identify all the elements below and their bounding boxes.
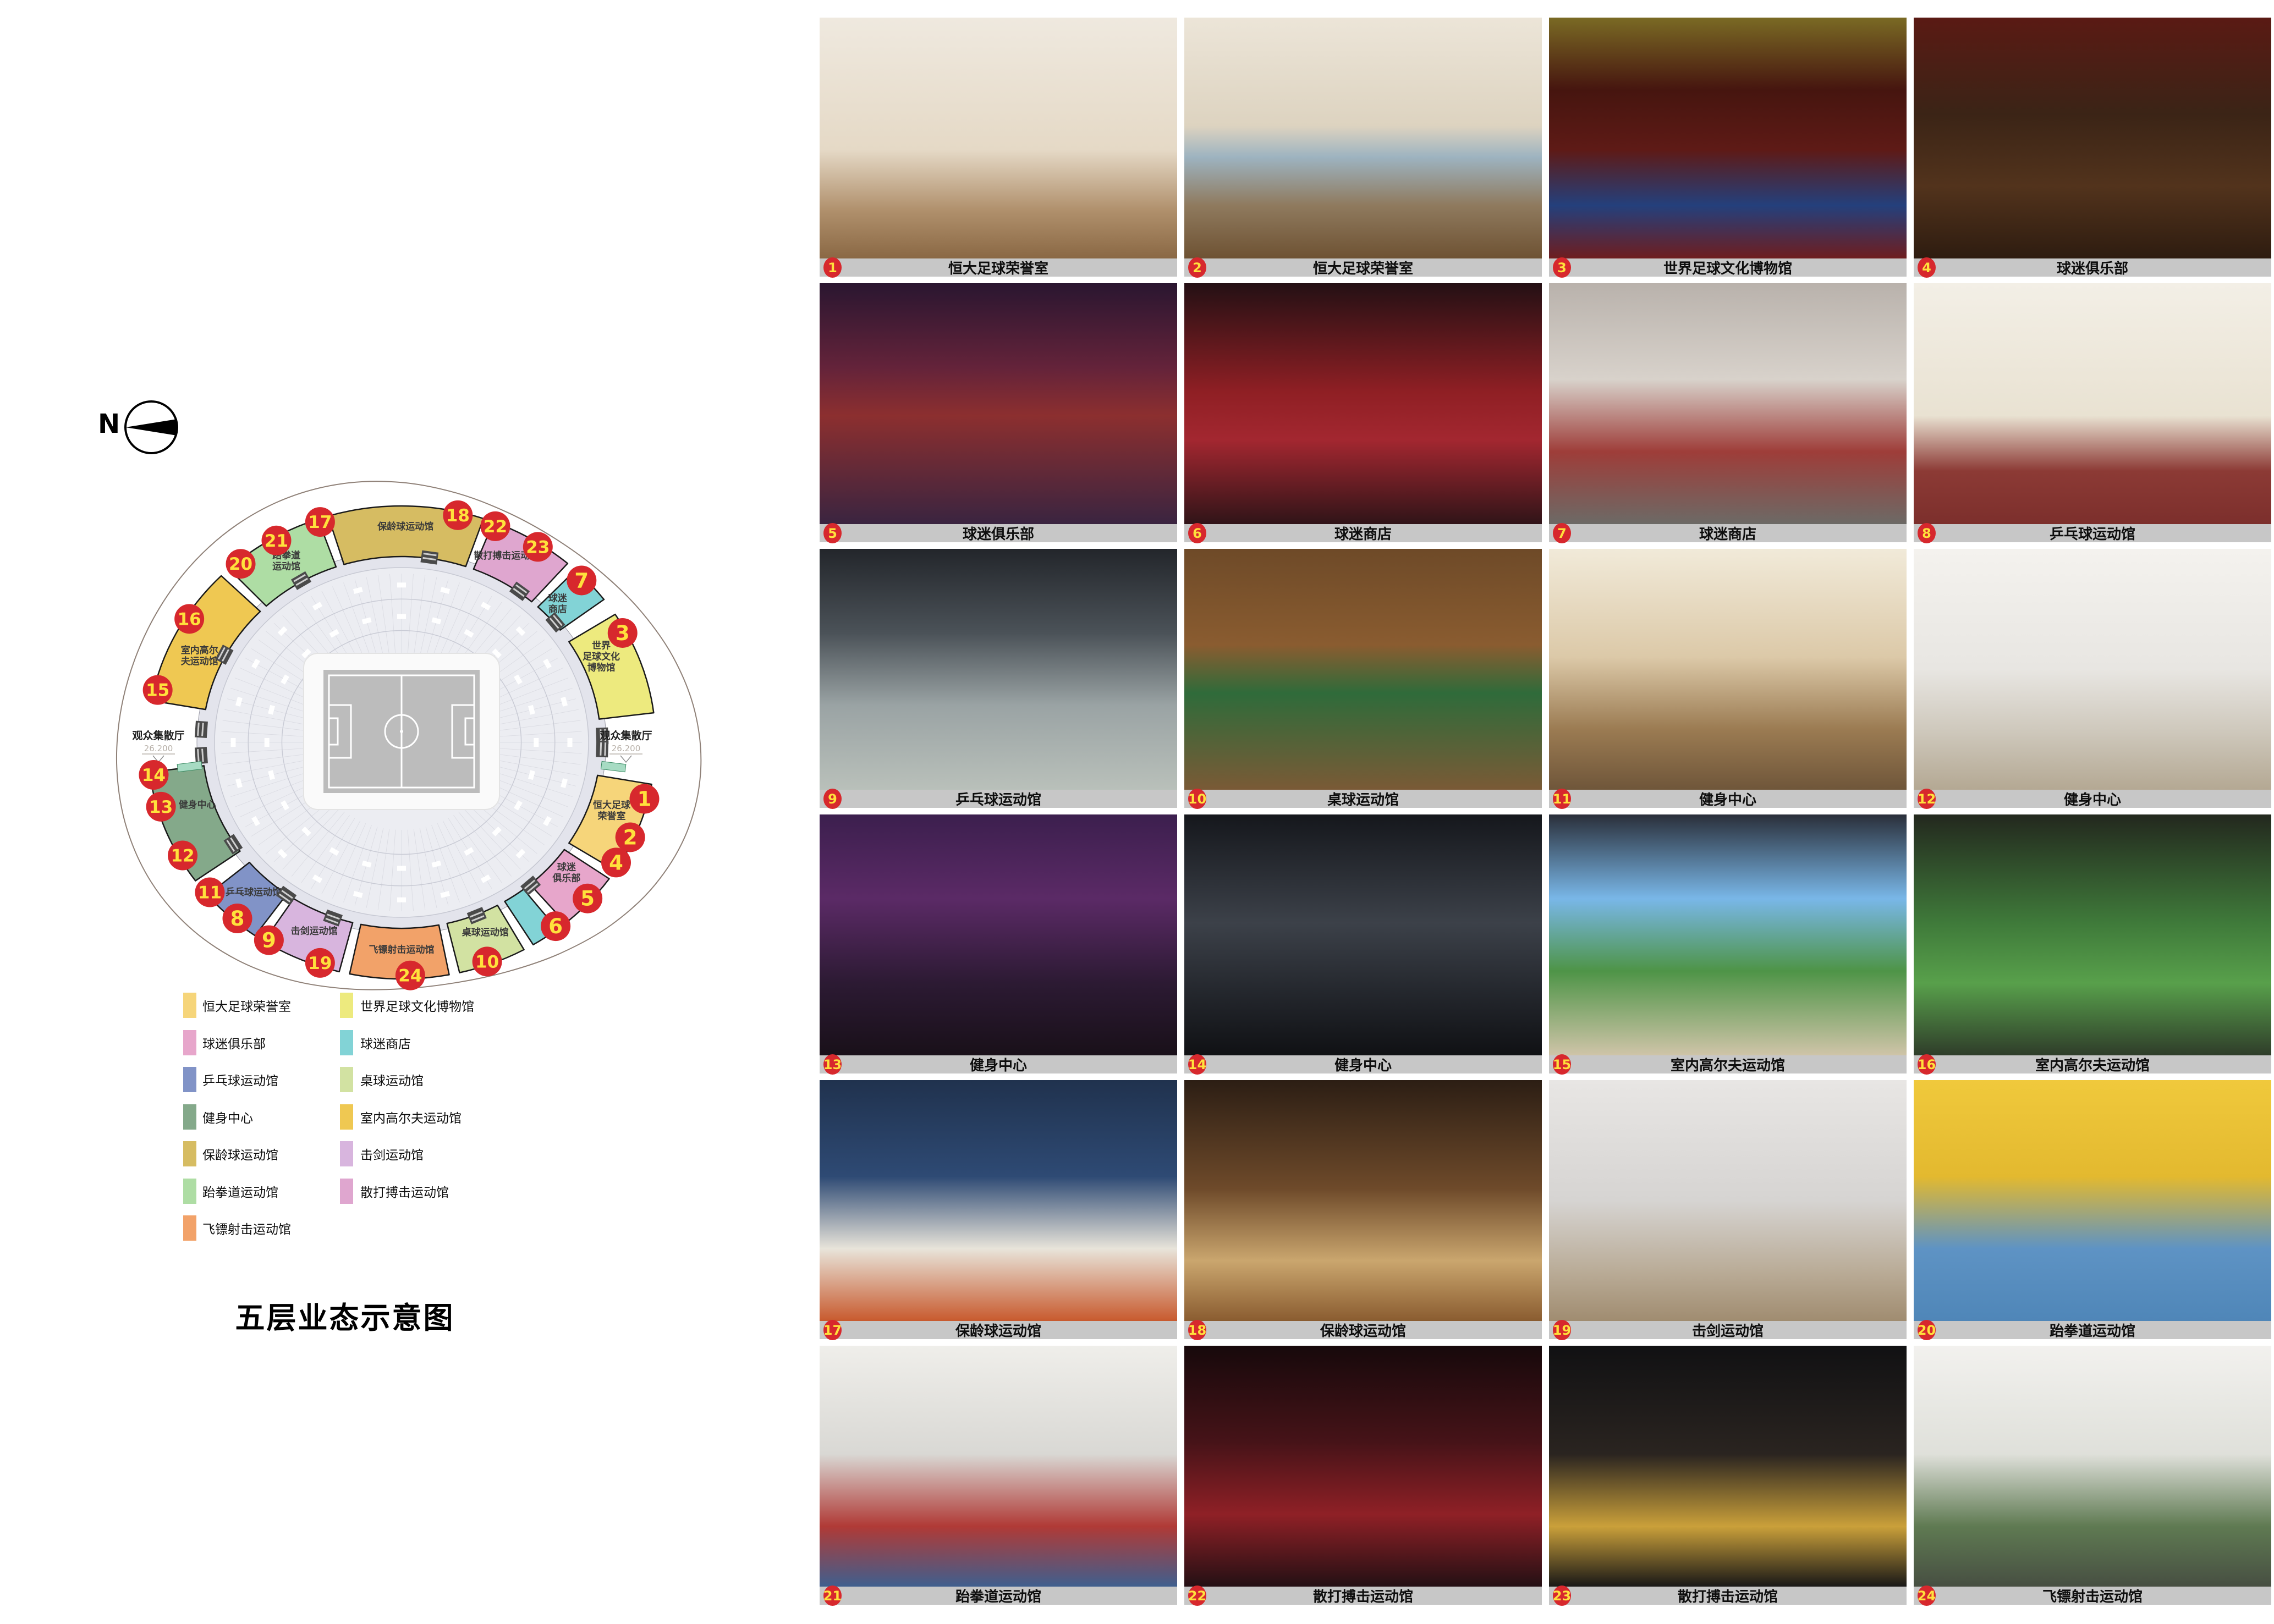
legend-label: 跆拳道运动馆 xyxy=(202,1182,278,1201)
photo-number-badge: 9 xyxy=(823,789,842,809)
photo-caption-bar: 9乒乓球运动馆 xyxy=(820,790,1177,808)
photo-number-badge: 22 xyxy=(1188,1586,1206,1606)
photo-caption-label: 飞镖射击运动馆 xyxy=(1914,1586,2271,1606)
legend-swatch xyxy=(340,993,353,1018)
photo-caption-bar: 24飞镖射击运动馆 xyxy=(1914,1587,2271,1605)
photo-caption-label: 击剑运动馆 xyxy=(1549,1320,1907,1340)
photo-placeholder xyxy=(820,18,1177,258)
legend-item: 健身中心 xyxy=(183,1104,253,1130)
photo-caption-bar: 2恒大足球荣誉室 xyxy=(1184,258,1542,277)
photo-number-badge: 1 xyxy=(823,257,842,278)
photo-number-badge: 19 xyxy=(1553,1320,1571,1340)
photo-caption-label: 球迷商店 xyxy=(1184,523,1542,543)
photo-placeholder xyxy=(1184,18,1542,258)
photo-placeholder xyxy=(1914,1346,2271,1587)
photo-card-9: 9乒乓球运动馆 xyxy=(820,549,1177,808)
photo-caption-bar: 19击剑运动馆 xyxy=(1549,1321,1907,1339)
photo-card-19: 19击剑运动馆 xyxy=(1549,1080,1907,1339)
plan-badge-17: 17 xyxy=(305,507,335,537)
plan-badge-20: 20 xyxy=(226,549,256,579)
photo-placeholder xyxy=(1549,283,1907,524)
svg-text:12: 12 xyxy=(171,846,194,866)
plan-badge-9: 9 xyxy=(254,926,284,955)
photo-placeholder xyxy=(1184,814,1542,1055)
svg-text:20: 20 xyxy=(229,554,252,574)
page-title: 五层业态示意图 xyxy=(180,1293,510,1337)
elevation-label: 26.200 xyxy=(144,744,173,753)
plan-zone-label-table-tennis: 乒乓球运动馆 xyxy=(226,887,282,898)
svg-text:16: 16 xyxy=(178,609,201,629)
photo-number-badge: 24 xyxy=(1918,1586,1936,1606)
photo-caption-label: 散打搏击运动馆 xyxy=(1184,1586,1542,1606)
photo-placeholder xyxy=(820,1346,1177,1587)
legend-label: 恒大足球荣誉室 xyxy=(202,996,291,1015)
svg-text:11: 11 xyxy=(198,883,222,903)
photo-caption-bar: 7球迷商店 xyxy=(1549,524,1907,542)
photo-caption-label: 球迷俱乐部 xyxy=(1914,257,2271,278)
photo-number-badge: 7 xyxy=(1553,523,1571,543)
photo-caption-bar: 16室内高尔夫运动馆 xyxy=(1914,1055,2271,1074)
plan-zone-label-honor-room: 恒大足球荣誉室 xyxy=(593,799,631,822)
photo-number-badge: 18 xyxy=(1188,1320,1206,1340)
legend-item: 室内高尔夫运动馆 xyxy=(340,1104,462,1130)
photo-caption-label: 恒大足球荣誉室 xyxy=(1184,257,1542,278)
photo-placeholder xyxy=(1914,18,2271,258)
photo-placeholder xyxy=(1914,814,2271,1055)
legend-swatch xyxy=(340,1104,353,1130)
photo-card-6: 6球迷商店 xyxy=(1184,283,1542,542)
photo-placeholder xyxy=(1914,549,2271,790)
legend-label: 世界足球文化博物馆 xyxy=(360,996,474,1015)
photo-number-badge: 10 xyxy=(1188,789,1206,809)
legend-label: 散打搏击运动馆 xyxy=(360,1182,449,1201)
plan-badge-5: 5 xyxy=(573,884,602,913)
svg-text:22: 22 xyxy=(484,517,507,537)
photo-caption-bar: 15室内高尔夫运动馆 xyxy=(1549,1055,1907,1074)
photo-number-badge: 17 xyxy=(823,1320,842,1340)
photo-card-8: 8乒乓球运动馆 xyxy=(1914,283,2271,542)
photo-caption-label: 跆拳道运动馆 xyxy=(820,1586,1177,1606)
photo-card-1: 1恒大足球荣誉室 xyxy=(820,18,1177,277)
photo-number-badge: 12 xyxy=(1918,789,1936,809)
photo-caption-bar: 8乒乓球运动馆 xyxy=(1914,524,2271,542)
photo-caption-label: 跆拳道运动馆 xyxy=(1914,1320,2271,1340)
plan-badge-8: 8 xyxy=(222,904,252,933)
svg-text:3: 3 xyxy=(616,621,630,645)
plan-badge-11: 11 xyxy=(195,878,224,907)
photo-caption-label: 健身中心 xyxy=(1914,789,2271,809)
photo-card-5: 5球迷俱乐部 xyxy=(820,283,1177,542)
photo-caption-bar: 6球迷商店 xyxy=(1184,524,1542,542)
plan-badge-4: 4 xyxy=(601,847,631,877)
photo-number-badge: 11 xyxy=(1553,789,1571,809)
photo-placeholder xyxy=(820,549,1177,790)
legend-item: 恒大足球荣誉室 xyxy=(183,993,291,1018)
photo-card-21: 21跆拳道运动馆 xyxy=(820,1346,1177,1605)
photo-caption-bar: 17保龄球运动馆 xyxy=(820,1321,1177,1339)
plan-badge-23: 23 xyxy=(523,532,553,561)
photo-placeholder xyxy=(1549,549,1907,790)
plan-badge-14: 14 xyxy=(139,760,168,790)
svg-text:19: 19 xyxy=(308,954,332,973)
photo-card-7: 7球迷商店 xyxy=(1549,283,1907,542)
svg-text:15: 15 xyxy=(146,681,169,701)
legend-item: 乒乓球运动馆 xyxy=(183,1067,278,1092)
photo-caption-bar: 1恒大足球荣誉室 xyxy=(820,258,1177,277)
svg-text:9: 9 xyxy=(262,929,276,953)
photo-card-13: 13健身中心 xyxy=(820,814,1177,1074)
svg-text:23: 23 xyxy=(526,537,550,557)
legend-label: 保龄球运动馆 xyxy=(202,1144,278,1163)
photo-number-badge: 13 xyxy=(823,1054,842,1075)
svg-text:7: 7 xyxy=(574,569,589,592)
photo-card-24: 24飞镖射击运动馆 xyxy=(1914,1346,2271,1605)
photo-caption-label: 球迷俱乐部 xyxy=(820,523,1177,543)
photo-caption-label: 乒乓球运动馆 xyxy=(820,789,1177,809)
legend-swatch xyxy=(183,1067,196,1092)
photo-caption-label: 球迷商店 xyxy=(1549,523,1907,543)
photo-caption-bar: 14健身中心 xyxy=(1184,1055,1542,1074)
photo-card-4: 4球迷俱乐部 xyxy=(1914,18,2271,277)
photo-caption-label: 保龄球运动馆 xyxy=(820,1320,1177,1340)
legend-item: 飞镖射击运动馆 xyxy=(183,1215,291,1241)
legend-label: 健身中心 xyxy=(202,1108,253,1126)
photo-card-18: 18保龄球运动馆 xyxy=(1184,1080,1542,1339)
photo-number-badge: 16 xyxy=(1918,1054,1936,1075)
photo-card-3: 3世界足球文化博物馆 xyxy=(1549,18,1907,277)
stairs-icon xyxy=(420,550,438,565)
photo-number-badge: 15 xyxy=(1553,1054,1571,1075)
legend-swatch xyxy=(340,1067,353,1092)
plan-badge-13: 13 xyxy=(146,792,176,822)
plan-badge-22: 22 xyxy=(480,511,510,541)
legend-swatch xyxy=(340,1141,353,1166)
photo-card-22: 22散打搏击运动馆 xyxy=(1184,1346,1542,1605)
plan-zone-label-golf: 室内高尔夫运动馆 xyxy=(181,645,218,667)
photo-caption-label: 保龄球运动馆 xyxy=(1184,1320,1542,1340)
photo-number-badge: 14 xyxy=(1188,1054,1206,1075)
legend-item: 世界足球文化博物馆 xyxy=(340,993,474,1018)
photo-caption-bar: 11健身中心 xyxy=(1549,790,1907,808)
photo-caption-bar: 4球迷俱乐部 xyxy=(1914,258,2271,277)
legend-label: 球迷商店 xyxy=(360,1033,411,1052)
stairs-icon xyxy=(596,740,608,757)
photo-card-2: 2恒大足球荣誉室 xyxy=(1184,18,1542,277)
photo-caption-bar: 23散打搏击运动馆 xyxy=(1549,1587,1907,1605)
legend-item: 保龄球运动馆 xyxy=(183,1141,278,1166)
legend-item: 跆拳道运动馆 xyxy=(183,1179,278,1204)
photo-caption-label: 桌球运动馆 xyxy=(1184,789,1542,809)
photo-number-badge: 5 xyxy=(823,523,842,543)
svg-text:1: 1 xyxy=(638,788,652,811)
photo-caption-label: 健身中心 xyxy=(1184,1054,1542,1075)
plan-badge-1: 1 xyxy=(629,784,659,814)
plan-badge-24: 24 xyxy=(396,961,425,990)
photo-caption-bar: 21跆拳道运动馆 xyxy=(820,1587,1177,1605)
north-label: N xyxy=(98,409,120,439)
photo-caption-label: 乒乓球运动馆 xyxy=(1914,523,2271,543)
photo-number-badge: 4 xyxy=(1918,257,1936,278)
legend-label: 飞镖射击运动馆 xyxy=(202,1219,291,1237)
legend-swatch xyxy=(183,1179,196,1204)
legend-swatch xyxy=(340,1030,353,1055)
photo-card-23: 23散打搏击运动馆 xyxy=(1549,1346,1907,1605)
plan-badge-12: 12 xyxy=(168,841,197,871)
plan-zone-label-bowling: 保龄球运动馆 xyxy=(377,521,433,532)
photo-placeholder xyxy=(1184,1346,1542,1587)
photo-placeholder xyxy=(1914,283,2271,524)
photo-number-badge: 8 xyxy=(1918,523,1936,543)
photo-caption-bar: 5球迷俱乐部 xyxy=(820,524,1177,542)
legend-item: 击剑运动馆 xyxy=(340,1141,424,1166)
photo-caption-bar: 18保龄球运动馆 xyxy=(1184,1321,1542,1339)
legend-swatch xyxy=(183,1141,196,1166)
svg-text:18: 18 xyxy=(446,506,470,526)
svg-text:24: 24 xyxy=(398,966,422,986)
photo-number-badge: 20 xyxy=(1918,1320,1936,1340)
photo-caption-bar: 13健身中心 xyxy=(820,1055,1177,1074)
photo-caption-bar: 20跆拳道运动馆 xyxy=(1914,1321,2271,1339)
plan-zone-label-fanshop-north: 球迷商店 xyxy=(548,593,568,615)
svg-text:21: 21 xyxy=(265,531,288,551)
photo-caption-label: 室内高尔夫运动馆 xyxy=(1914,1054,2271,1075)
photo-card-17: 17保龄球运动馆 xyxy=(820,1080,1177,1339)
stairs-icon xyxy=(195,721,208,738)
legend-label: 乒乓球运动馆 xyxy=(202,1070,278,1089)
legend-item: 散打搏击运动馆 xyxy=(340,1179,449,1204)
plan-badge-7: 7 xyxy=(567,565,596,595)
photo-placeholder xyxy=(820,1080,1177,1321)
plan-badge-10: 10 xyxy=(473,946,502,976)
legend-item: 桌球运动馆 xyxy=(340,1067,424,1092)
plan-badge-18: 18 xyxy=(443,500,473,530)
photo-placeholder xyxy=(1914,1080,2271,1321)
plan-badge-3: 3 xyxy=(608,618,638,648)
legend-swatch xyxy=(340,1179,353,1204)
svg-text:8: 8 xyxy=(230,907,245,931)
photo-card-15: 15室内高尔夫运动馆 xyxy=(1549,814,1907,1074)
legend-label: 击剑运动馆 xyxy=(360,1144,424,1163)
plan-badge-19: 19 xyxy=(305,948,335,978)
plan-zone-label-fencing: 击剑运动馆 xyxy=(291,925,338,937)
legend-label: 球迷俱乐部 xyxy=(202,1033,266,1052)
plan-badge-21: 21 xyxy=(262,526,292,555)
svg-text:6: 6 xyxy=(548,915,563,938)
photo-number-badge: 3 xyxy=(1553,257,1571,278)
photo-caption-label: 散打搏击运动馆 xyxy=(1549,1586,1907,1606)
legend-item: 球迷俱乐部 xyxy=(183,1030,266,1055)
photo-card-14: 14健身中心 xyxy=(1184,814,1542,1074)
plan-badge-16: 16 xyxy=(174,604,204,634)
photo-caption-label: 健身中心 xyxy=(1549,789,1907,809)
photo-placeholder xyxy=(1549,814,1907,1055)
plan-badge-6: 6 xyxy=(541,911,570,941)
photo-caption-label: 室内高尔夫运动馆 xyxy=(1549,1054,1907,1075)
page-canvas: N 跆拳道运动馆保龄球运动馆散打搏击运动馆球迷商店世界足球文化博物馆恒大足球荣誉… xyxy=(0,0,2274,1624)
photo-placeholder xyxy=(820,283,1177,524)
hall-label: 观众集散厅 xyxy=(132,729,184,742)
photo-caption-label: 健身中心 xyxy=(820,1054,1177,1075)
legend-swatch xyxy=(183,993,196,1018)
plan-zone-label-billiards: 桌球运动馆 xyxy=(462,927,509,938)
photo-placeholder xyxy=(1549,1080,1907,1321)
photo-number-badge: 2 xyxy=(1188,257,1206,278)
svg-text:5: 5 xyxy=(580,887,595,911)
legend-swatch xyxy=(183,1215,196,1241)
photo-placeholder xyxy=(1184,283,1542,524)
svg-text:14: 14 xyxy=(142,766,166,785)
plan-zone-label-fitness: 健身中心 xyxy=(179,799,216,811)
svg-text:2: 2 xyxy=(623,825,638,849)
photo-card-10: 10桌球运动馆 xyxy=(1184,549,1542,808)
photo-number-badge: 23 xyxy=(1553,1586,1571,1606)
photo-placeholder xyxy=(1549,1346,1907,1587)
photo-caption-bar: 12健身中心 xyxy=(1914,790,2271,808)
photo-card-16: 16室内高尔夫运动馆 xyxy=(1914,814,2271,1074)
photo-placeholder xyxy=(1549,18,1907,258)
photo-caption-bar: 3世界足球文化博物馆 xyxy=(1549,258,1907,277)
photo-card-11: 11健身中心 xyxy=(1549,549,1907,808)
photo-number-badge: 21 xyxy=(823,1586,842,1606)
photo-placeholder xyxy=(1184,1080,1542,1321)
photo-card-12: 12健身中心 xyxy=(1914,549,2271,808)
legend-label: 室内高尔夫运动馆 xyxy=(360,1108,462,1126)
photo-caption-label: 世界足球文化博物馆 xyxy=(1549,257,1907,278)
stadium-floor-plan: 跆拳道运动馆保龄球运动馆散打搏击运动馆球迷商店世界足球文化博物馆恒大足球荣誉室球… xyxy=(77,451,726,1034)
legend-swatch xyxy=(183,1104,196,1130)
plan-zone-label-darts: 飞镖射击运动馆 xyxy=(369,944,435,956)
svg-text:17: 17 xyxy=(308,513,332,532)
photo-caption-bar: 22散打搏击运动馆 xyxy=(1184,1587,1542,1605)
svg-text:10: 10 xyxy=(475,952,499,972)
photo-placeholder xyxy=(1184,549,1542,790)
photo-card-20: 20跆拳道运动馆 xyxy=(1914,1080,2271,1339)
svg-text:13: 13 xyxy=(149,797,173,817)
legend-swatch xyxy=(183,1030,196,1055)
svg-text:4: 4 xyxy=(609,851,623,874)
legend-label: 桌球运动馆 xyxy=(360,1070,424,1089)
legend-item: 球迷商店 xyxy=(340,1030,411,1055)
photo-number-badge: 6 xyxy=(1188,523,1206,543)
hall-label: 观众集散厅 xyxy=(600,729,652,742)
photo-placeholder xyxy=(820,814,1177,1055)
plan-badge-2: 2 xyxy=(616,822,645,852)
plan-badge-15: 15 xyxy=(143,675,173,705)
elevation-label: 26.200 xyxy=(612,744,641,753)
photo-caption-bar: 10桌球运动馆 xyxy=(1184,790,1542,808)
photo-caption-label: 恒大足球荣誉室 xyxy=(820,257,1177,278)
